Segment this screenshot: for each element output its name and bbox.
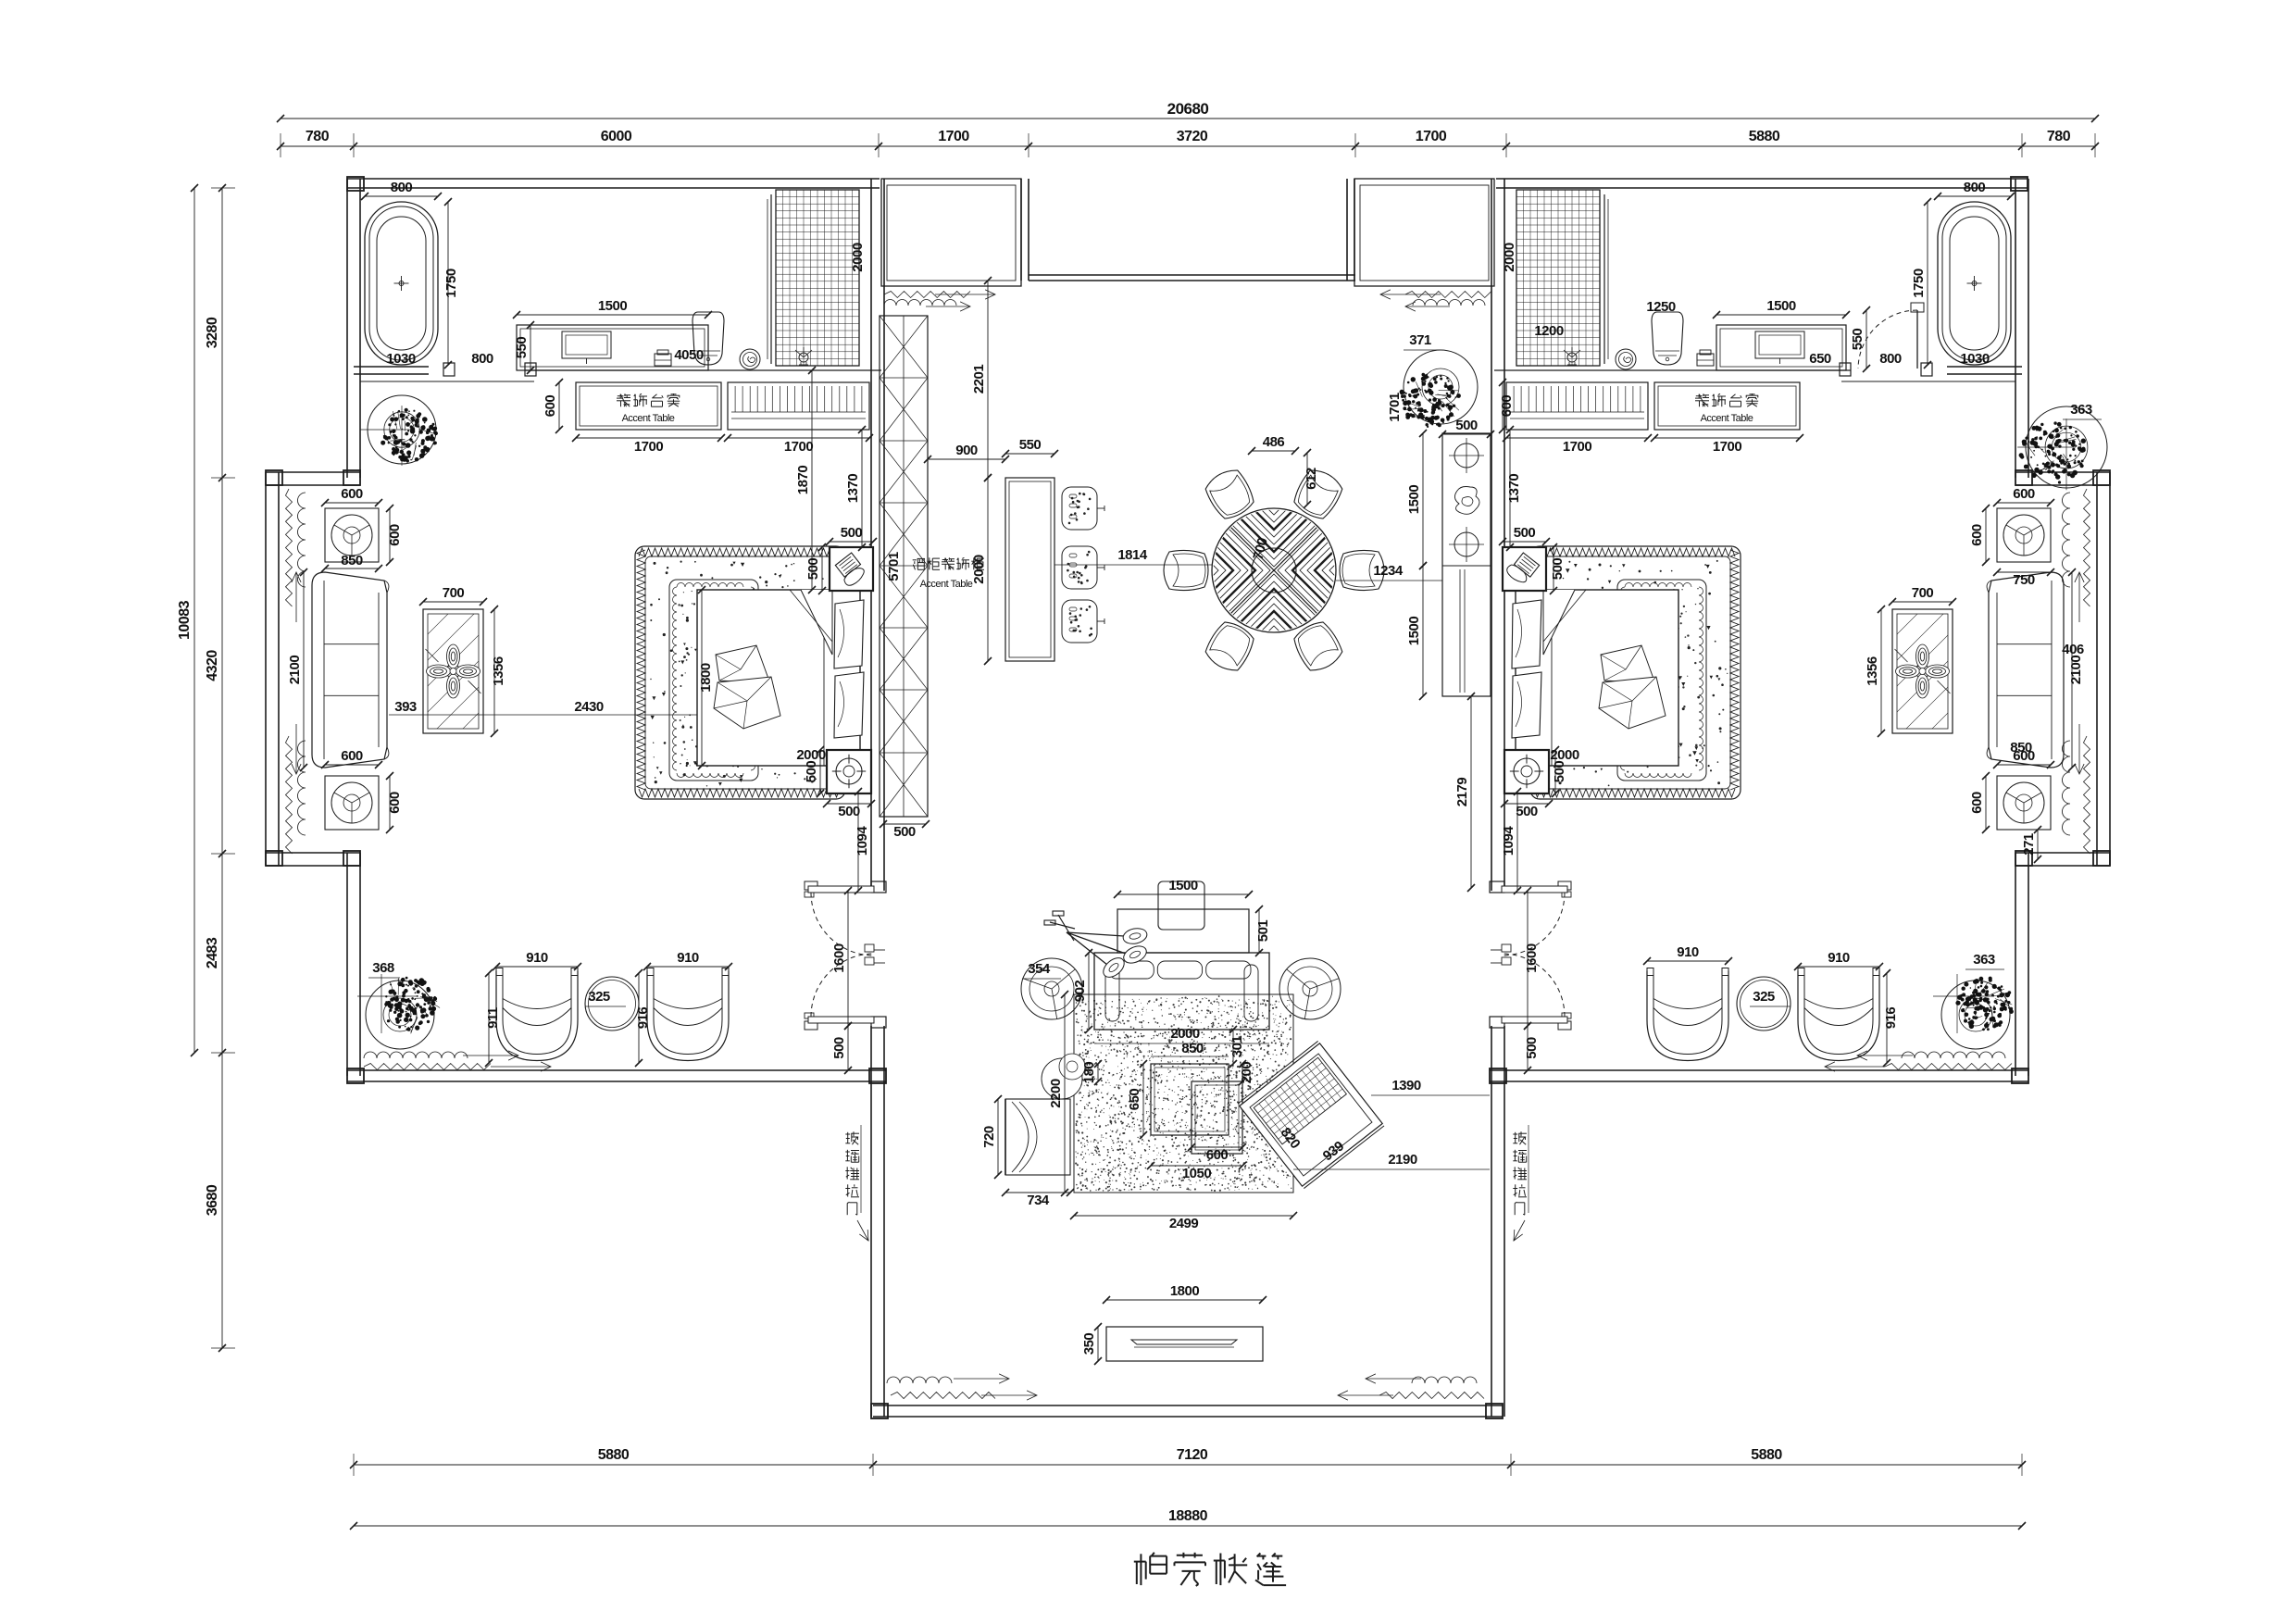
svg-text:911: 911 xyxy=(485,1007,501,1029)
svg-text:700: 700 xyxy=(443,585,465,601)
svg-text:650: 650 xyxy=(1809,351,1831,367)
svg-text:1390: 1390 xyxy=(1391,1078,1421,1093)
svg-text:354: 354 xyxy=(1028,961,1051,977)
svg-text:5701: 5701 xyxy=(886,552,902,581)
svg-text:1701: 1701 xyxy=(1387,393,1403,422)
svg-text:600: 600 xyxy=(1969,792,1985,814)
svg-text:600: 600 xyxy=(341,486,363,502)
svg-text:406: 406 xyxy=(2062,642,2084,657)
svg-text:500: 500 xyxy=(1514,525,1536,541)
svg-text:325: 325 xyxy=(588,989,610,1005)
svg-text:2000: 2000 xyxy=(796,747,826,763)
svg-text:780: 780 xyxy=(2047,129,2071,144)
svg-text:368: 368 xyxy=(372,960,394,976)
svg-text:850: 850 xyxy=(341,553,363,568)
svg-text:4320: 4320 xyxy=(205,650,220,681)
svg-text:350: 350 xyxy=(1081,1333,1097,1355)
svg-text:612: 612 xyxy=(1304,468,1319,490)
svg-text:1700: 1700 xyxy=(784,439,814,455)
svg-text:2483: 2483 xyxy=(205,937,220,968)
svg-text:910: 910 xyxy=(677,950,699,966)
svg-text:900: 900 xyxy=(955,443,978,458)
svg-text:10083: 10083 xyxy=(177,600,193,640)
svg-text:600: 600 xyxy=(543,395,558,418)
svg-text:371: 371 xyxy=(1409,332,1431,348)
svg-text:3720: 3720 xyxy=(1177,129,1208,144)
svg-text:1700: 1700 xyxy=(938,129,969,144)
svg-text:1030: 1030 xyxy=(386,351,416,367)
svg-text:734: 734 xyxy=(1027,1193,1050,1208)
svg-text:501: 501 xyxy=(1255,920,1271,943)
svg-text:1870: 1870 xyxy=(795,466,811,495)
svg-text:700: 700 xyxy=(1912,585,1934,601)
svg-text:500: 500 xyxy=(1550,558,1566,581)
svg-text:5880: 5880 xyxy=(598,1447,630,1463)
svg-text:1500: 1500 xyxy=(1406,617,1422,646)
svg-text:7120: 7120 xyxy=(1177,1447,1208,1463)
svg-text:2100: 2100 xyxy=(287,656,303,685)
svg-text:600: 600 xyxy=(2013,486,2035,502)
svg-text:600: 600 xyxy=(1206,1147,1229,1163)
svg-text:1800: 1800 xyxy=(698,663,714,693)
svg-text:600: 600 xyxy=(387,792,403,814)
svg-text:2201: 2201 xyxy=(971,365,987,394)
svg-text:2190: 2190 xyxy=(1388,1152,1417,1168)
svg-text:500: 500 xyxy=(841,525,863,541)
svg-text:500: 500 xyxy=(1552,761,1567,783)
svg-text:200: 200 xyxy=(1239,1062,1254,1084)
svg-text:363: 363 xyxy=(1973,952,1995,968)
svg-text:1700: 1700 xyxy=(1416,129,1447,144)
svg-text:720: 720 xyxy=(981,1126,997,1148)
svg-text:5880: 5880 xyxy=(1749,129,1780,144)
svg-text:500: 500 xyxy=(805,558,821,581)
svg-text:500: 500 xyxy=(804,761,819,783)
svg-text:1700: 1700 xyxy=(1713,439,1742,455)
svg-text:1370: 1370 xyxy=(1506,474,1522,504)
svg-text:500: 500 xyxy=(1524,1037,1540,1059)
svg-text:271: 271 xyxy=(2021,833,2037,856)
svg-text:20680: 20680 xyxy=(1167,100,1209,118)
svg-text:910: 910 xyxy=(1677,944,1699,960)
svg-text:180: 180 xyxy=(1081,1062,1097,1084)
svg-text:1250: 1250 xyxy=(1646,299,1676,315)
svg-text:Accent Table: Accent Table xyxy=(1701,413,1753,424)
svg-text:850: 850 xyxy=(1181,1041,1204,1056)
svg-text:1750: 1750 xyxy=(443,269,459,298)
svg-text:500: 500 xyxy=(1516,804,1538,819)
svg-text:2430: 2430 xyxy=(574,699,604,715)
svg-text:750: 750 xyxy=(2013,572,2035,588)
svg-text:1234: 1234 xyxy=(1373,563,1404,579)
svg-text:550: 550 xyxy=(1850,329,1865,351)
svg-text:1750: 1750 xyxy=(1911,269,1927,298)
svg-text:800: 800 xyxy=(471,351,493,367)
svg-text:910: 910 xyxy=(526,950,548,966)
svg-text:Accent Table: Accent Table xyxy=(622,413,675,424)
svg-text:1356: 1356 xyxy=(1865,656,1880,686)
svg-text:550: 550 xyxy=(1019,437,1042,453)
svg-text:301: 301 xyxy=(1229,1036,1245,1058)
svg-text:1500: 1500 xyxy=(1406,485,1422,515)
svg-text:2179: 2179 xyxy=(1454,778,1470,807)
svg-text:3680: 3680 xyxy=(205,1184,220,1216)
svg-text:800: 800 xyxy=(391,180,413,195)
svg-text:18880: 18880 xyxy=(1168,1508,1208,1524)
svg-text:1370: 1370 xyxy=(845,474,861,504)
svg-text:600: 600 xyxy=(387,524,403,546)
svg-text:600: 600 xyxy=(1499,395,1515,418)
svg-text:916: 916 xyxy=(635,1007,651,1030)
svg-text:393: 393 xyxy=(394,699,417,715)
svg-text:2000: 2000 xyxy=(1170,1026,1200,1042)
svg-text:1200: 1200 xyxy=(1534,323,1564,339)
svg-text:800: 800 xyxy=(1879,351,1902,367)
svg-text:363: 363 xyxy=(2070,402,2092,418)
svg-text:500: 500 xyxy=(838,804,860,819)
svg-text:486: 486 xyxy=(1263,434,1285,450)
svg-text:850: 850 xyxy=(2010,740,2032,756)
svg-text:1050: 1050 xyxy=(1182,1166,1212,1181)
svg-text:3280: 3280 xyxy=(205,317,220,348)
svg-text:800: 800 xyxy=(1964,180,1986,195)
svg-text:1030: 1030 xyxy=(1960,351,1990,367)
svg-text:500: 500 xyxy=(831,1037,847,1059)
svg-text:2499: 2499 xyxy=(1169,1216,1199,1231)
svg-text:1094: 1094 xyxy=(855,826,870,856)
svg-text:4050: 4050 xyxy=(674,347,704,363)
svg-text:2200: 2200 xyxy=(1048,1079,1064,1108)
svg-text:650: 650 xyxy=(1127,1089,1142,1111)
svg-text:780: 780 xyxy=(306,129,330,144)
svg-text:1800: 1800 xyxy=(1170,1283,1200,1299)
svg-text:1500: 1500 xyxy=(598,298,628,314)
svg-text:2100: 2100 xyxy=(2068,656,2084,685)
svg-text:2000: 2000 xyxy=(1550,747,1579,763)
svg-text:5880: 5880 xyxy=(1751,1447,1782,1463)
svg-text:902: 902 xyxy=(1072,981,1088,1003)
svg-text:1600: 1600 xyxy=(1524,943,1540,973)
svg-text:500: 500 xyxy=(1455,418,1478,433)
svg-text:1700: 1700 xyxy=(634,439,664,455)
svg-text:6000: 6000 xyxy=(601,129,632,144)
svg-text:2000: 2000 xyxy=(1502,243,1517,272)
svg-text:2000: 2000 xyxy=(971,555,987,584)
svg-text:916: 916 xyxy=(1883,1007,1899,1030)
svg-text:325: 325 xyxy=(1753,989,1775,1005)
svg-text:1500: 1500 xyxy=(1766,298,1796,314)
svg-text:500: 500 xyxy=(893,824,916,840)
svg-text:600: 600 xyxy=(341,748,363,764)
svg-text:1356: 1356 xyxy=(491,656,506,686)
svg-text:1814: 1814 xyxy=(1117,547,1148,563)
svg-text:600: 600 xyxy=(1969,524,1985,546)
svg-text:1600: 1600 xyxy=(831,943,847,973)
svg-text:1500: 1500 xyxy=(1168,878,1198,893)
svg-text:2000: 2000 xyxy=(850,243,866,272)
svg-text:Accent Table: Accent Table xyxy=(920,579,973,590)
svg-text:1700: 1700 xyxy=(1563,439,1592,455)
svg-text:1094: 1094 xyxy=(1501,826,1516,856)
svg-text:550: 550 xyxy=(514,337,530,359)
svg-text:910: 910 xyxy=(1828,950,1850,966)
